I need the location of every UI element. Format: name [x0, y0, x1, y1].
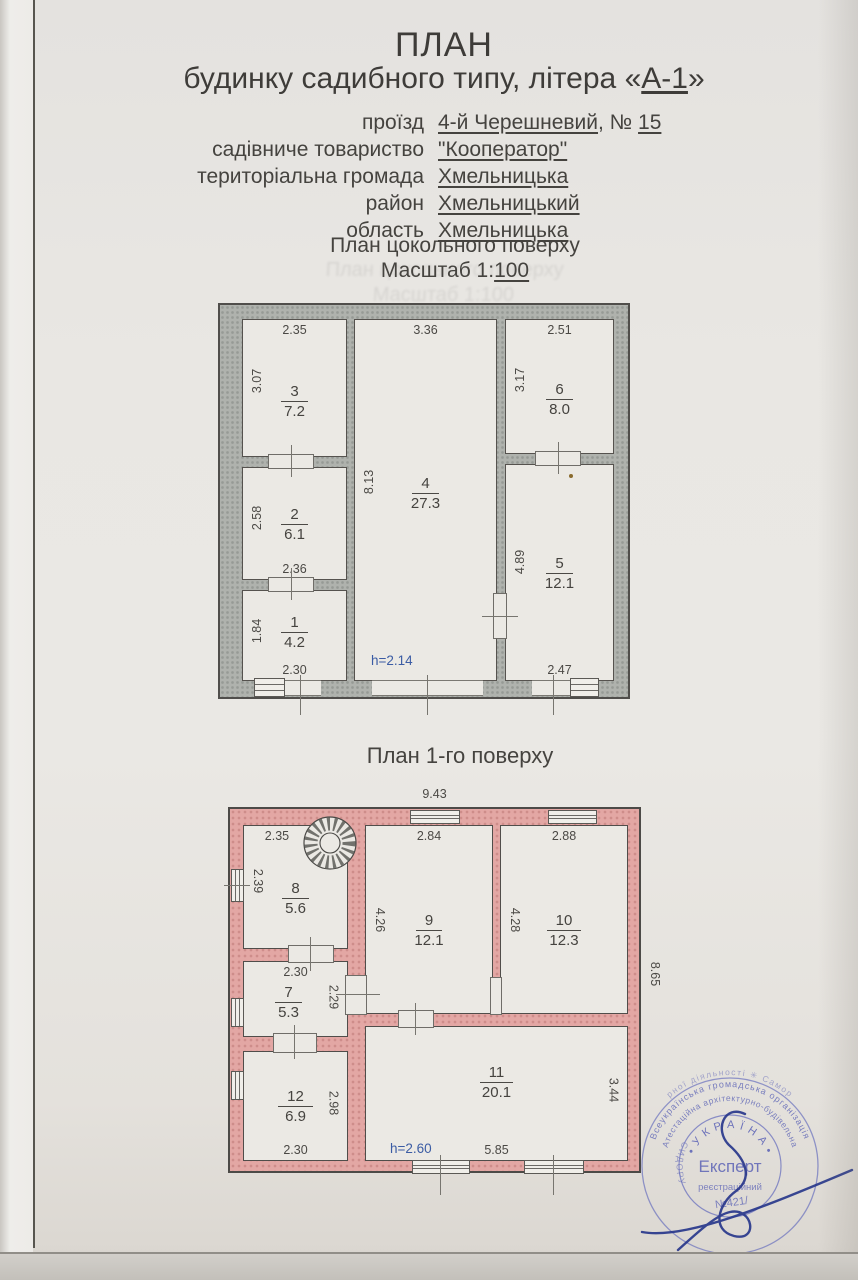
page-title: ПЛАН: [30, 26, 858, 65]
street-name: 4-й Черешневий: [438, 111, 598, 134]
street-sep: , №: [598, 111, 638, 134]
room-number: 10: [547, 912, 582, 931]
basement-room-4: 3.36 8.13 427.3 h=2.14: [354, 319, 497, 681]
stamp-registry-label: реєстраційний: [698, 1182, 762, 1193]
room-label: 1120.1: [366, 1064, 627, 1101]
stamp-registry-number: №421/: [714, 1195, 749, 1212]
page-edge-line: [33, 0, 35, 1248]
paper-stain: [569, 474, 573, 478]
room-area: 5.6: [244, 900, 347, 917]
floor1-room-10: 2.88 4.28 1012.3: [500, 825, 628, 1014]
dimension-tick: [224, 885, 250, 886]
ceiling-height-note: h=2.60: [390, 1141, 432, 1156]
total-width-dim: 9.43: [230, 787, 639, 801]
dim-width-top: 2.88: [552, 829, 576, 843]
address-row-society: садівниче товариство "Кооператор": [0, 136, 858, 163]
door-centerline: [294, 1025, 295, 1059]
room-number: 12: [278, 1088, 313, 1107]
address-label: садівниче товариство: [0, 136, 438, 163]
dim-width-top: 2.84: [417, 829, 441, 843]
page-right-shadow: [818, 0, 858, 1280]
dimension-tick: [553, 675, 554, 715]
dimension-tick: [427, 675, 428, 715]
door-centerline: [310, 937, 311, 971]
room-number: 7: [275, 984, 301, 1003]
window: [524, 1160, 584, 1174]
floor1-room-8: 2.35 2.39 85.6: [243, 825, 348, 949]
basement-room-5: 4.89 2.47 512.1: [505, 464, 614, 681]
scale-value: 100: [494, 259, 529, 282]
room-number: 1: [281, 614, 307, 633]
page-subtitle: будинку садибного типу, літера «А-1»: [30, 62, 858, 96]
room-label: 85.6: [244, 880, 347, 917]
room-number: 9: [416, 912, 442, 931]
room-number: 11: [480, 1064, 514, 1083]
room-number: 6: [546, 381, 572, 400]
room-area: 12.1: [366, 932, 492, 949]
subtitle-letter: А-1: [641, 62, 688, 95]
stamp-role-text: Експерт: [699, 1157, 762, 1176]
total-height-dim: 8.65: [648, 962, 662, 986]
first-floor-plan: 9.43 8.65 2.35 2.39 85.6 2.30 2.29 75.3 …: [228, 807, 641, 1173]
window: [410, 810, 460, 824]
basement-room-1: 1.84 2.30 14.2: [242, 590, 347, 681]
page-bottom-shadow: [0, 1254, 858, 1280]
room-area: 4.2: [243, 634, 346, 651]
floor1-room-11: 3.44 5.85 1120.1 h=2.60: [365, 1026, 628, 1161]
door-centerline: [415, 1003, 416, 1035]
dim-width-bottom: 2.30: [283, 1143, 307, 1157]
door-centerline: [291, 568, 292, 600]
door-opening: [398, 1010, 434, 1028]
address-row-street: проїзд 4-й Черешневий, № 15: [0, 109, 858, 136]
room-number: 5: [546, 555, 572, 574]
room-number: 3: [281, 383, 307, 402]
document-page: ПЛАН будинку садибного типу, літера «А-1…: [0, 0, 858, 1280]
dim-width-top: 2.35: [265, 829, 289, 843]
svg-text:• У К Р А Ї Н А •: • У К Р А Ї Н А •: [685, 1119, 774, 1156]
door-opening: [288, 945, 334, 963]
basement-room-6: 2.51 3.17 68.0: [505, 319, 614, 454]
address-value: Хмельницький: [438, 190, 580, 217]
scale-prefix: Масштаб 1:: [381, 259, 494, 282]
window: [254, 678, 285, 697]
address-value: Хмельницька: [438, 163, 568, 190]
window: [548, 810, 597, 824]
door-centerline: [336, 994, 380, 995]
spiral-staircase-icon: [301, 814, 359, 872]
door-centerline: [482, 616, 518, 617]
door-opening: [345, 975, 367, 1015]
page-left-margin: [0, 0, 33, 1255]
basement-room-2: 2.58 2.36 26.1: [242, 467, 347, 580]
room-label: 68.0: [506, 381, 613, 418]
room-area: 7.2: [243, 403, 346, 420]
stamp-name-fragment: СИДОРУ: [674, 1140, 690, 1187]
room-label: 427.3: [355, 475, 496, 512]
subtitle-suffix: »: [688, 62, 705, 95]
subtitle-prefix: будинку садибного типу, літера «: [183, 62, 641, 95]
room-label: 37.2: [243, 383, 346, 420]
floor1-room-9: 2.84 4.26 912.1: [365, 825, 493, 1014]
scale-line: Масштаб 1:100: [52, 259, 858, 283]
wall-opening: [532, 680, 570, 696]
window: [231, 998, 244, 1027]
floor1-room-12: 2.98 2.30 126.9: [243, 1051, 348, 1161]
door-centerline: [291, 445, 292, 477]
dimension-tick: [300, 675, 301, 715]
room-area: 6.1: [243, 526, 346, 543]
floor1-room-7: 2.30 2.29 75.3: [243, 961, 348, 1037]
room-label: 126.9: [244, 1088, 347, 1125]
dim-width-top: 2.35: [282, 323, 306, 337]
dim-width-top: 2.30: [283, 965, 307, 979]
room-number: 8: [282, 880, 308, 899]
svg-text:СИДОРУ: СИДОРУ: [674, 1140, 690, 1187]
door-opening: [490, 977, 502, 1015]
door-centerline: [558, 442, 559, 474]
dim-width-bottom: 5.85: [484, 1143, 508, 1157]
address-label: район: [0, 190, 438, 217]
dim-width-bottom: 2.47: [547, 663, 571, 677]
window: [231, 1071, 244, 1100]
room-area: 5.3: [230, 1004, 347, 1021]
address-block: проїзд 4-й Черешневий, № 15 садівниче то…: [0, 109, 858, 244]
room-label: 912.1: [366, 912, 492, 949]
address-value: "Кооператор": [438, 136, 567, 163]
basement-room-3: 2.35 3.07 37.2: [242, 319, 347, 457]
room-label: 1012.3: [501, 912, 627, 949]
dimension-tick: [440, 1155, 441, 1195]
basement-section-title: План цокольного поверху: [52, 234, 858, 258]
floor1-section-title: План 1-го поверху: [62, 743, 858, 769]
room-label: 75.3: [230, 984, 347, 1021]
room-area: 20.1: [366, 1084, 627, 1101]
room-label: 26.1: [243, 506, 346, 543]
wall-opening: [285, 680, 321, 696]
address-label: територіальна громада: [0, 163, 438, 190]
stamp-country-text: • У К Р А Ї Н А •: [685, 1119, 774, 1156]
ceiling-height-note: h=2.14: [371, 653, 413, 668]
dim-width-top: 2.51: [547, 323, 571, 337]
dim-width-top: 3.36: [413, 323, 437, 337]
address-row-hromada: територіальна громада Хмельницька: [0, 163, 858, 190]
dim-width-bottom: 2.30: [282, 663, 306, 677]
room-number: 4: [412, 475, 438, 494]
room-label: 14.2: [243, 614, 346, 651]
door-opening: [273, 1033, 317, 1053]
window: [570, 678, 599, 697]
room-area: 27.3: [355, 495, 496, 512]
dimension-tick: [553, 1155, 554, 1195]
basement-floor-plan: 2.35 3.07 37.2 2.58 2.36 26.1 1.84 2.30 …: [218, 303, 630, 699]
room-area: 8.0: [506, 401, 613, 418]
address-row-district: район Хмельницький: [0, 190, 858, 217]
room-number: 2: [281, 506, 307, 525]
window: [412, 1160, 470, 1174]
room-area: 6.9: [244, 1108, 347, 1125]
room-label: 512.1: [506, 555, 613, 592]
room-area: 12.3: [501, 932, 627, 949]
dim-width-bottom: 2.36: [282, 562, 306, 576]
house-number: 15: [638, 111, 661, 134]
address-value: 4-й Черешневий, № 15: [438, 109, 661, 136]
address-label: проїзд: [0, 109, 438, 136]
room-area: 12.1: [506, 575, 613, 592]
